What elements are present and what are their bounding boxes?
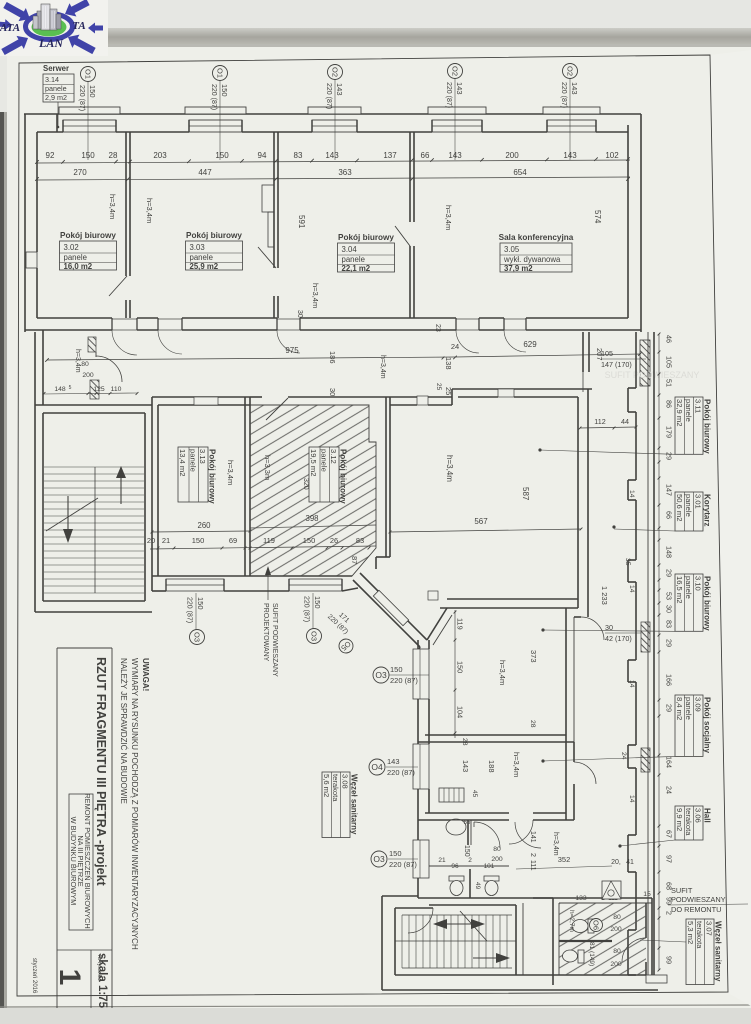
svg-text:5,3 m2: 5,3 m2 bbox=[686, 921, 695, 944]
svg-text:3.03: 3.03 bbox=[190, 243, 205, 252]
svg-text:21: 21 bbox=[162, 536, 170, 545]
svg-text:654: 654 bbox=[513, 168, 527, 177]
svg-text:150: 150 bbox=[390, 665, 403, 674]
svg-text:Pokój biurowy: Pokój biurowy bbox=[338, 233, 394, 242]
svg-text:15: 15 bbox=[643, 891, 651, 898]
svg-text:3.08: 3.08 bbox=[341, 774, 350, 789]
svg-text:148: 148 bbox=[54, 386, 66, 393]
svg-text:35: 35 bbox=[624, 558, 631, 566]
svg-text:447: 447 bbox=[198, 168, 212, 177]
svg-text:14: 14 bbox=[628, 490, 635, 498]
svg-text:150: 150 bbox=[215, 151, 229, 160]
svg-text:Węzeł sanitarny: Węzeł sanitarny bbox=[714, 921, 723, 982]
svg-text:66: 66 bbox=[665, 511, 674, 519]
svg-text:28: 28 bbox=[461, 738, 468, 746]
svg-text:80: 80 bbox=[493, 846, 501, 853]
svg-text:105: 105 bbox=[665, 356, 674, 368]
svg-text:RZUT FRAGMENTU III PIĘTRA -pro: RZUT FRAGMENTU III PIĘTRA -projekt bbox=[94, 657, 108, 887]
svg-text:30: 30 bbox=[296, 310, 303, 318]
svg-text:23: 23 bbox=[434, 324, 441, 332]
svg-text:O3: O3 bbox=[373, 854, 385, 864]
svg-text:LAN: LAN bbox=[38, 36, 64, 50]
svg-text:PODWIESZANY: PODWIESZANY bbox=[671, 895, 726, 904]
svg-text:87: 87 bbox=[350, 556, 359, 564]
svg-text:Pokój biurowy: Pokój biurowy bbox=[703, 399, 712, 454]
svg-text:143: 143 bbox=[461, 760, 470, 772]
svg-text:200: 200 bbox=[82, 372, 94, 379]
svg-text:19,5 m2: 19,5 m2 bbox=[309, 449, 318, 476]
svg-text:3.05: 3.05 bbox=[504, 245, 520, 254]
svg-text:3.06: 3.06 bbox=[694, 808, 703, 823]
svg-text:h=3,4m: h=3,4m bbox=[445, 455, 454, 482]
svg-text:h=3,4m: h=3,4m bbox=[226, 460, 235, 485]
svg-text:141: 141 bbox=[529, 831, 536, 843]
svg-text:h=3,3m: h=3,3m bbox=[263, 455, 272, 480]
svg-text:220 (87): 220 (87) bbox=[389, 860, 417, 869]
svg-text:3.12: 3.12 bbox=[329, 449, 338, 464]
svg-text:105: 105 bbox=[601, 349, 613, 358]
svg-text:150: 150 bbox=[313, 596, 322, 609]
svg-text:14: 14 bbox=[628, 795, 635, 803]
svg-text:panele: panele bbox=[189, 449, 198, 472]
svg-text:14: 14 bbox=[628, 585, 635, 593]
svg-text:22,1 m2: 22,1 m2 bbox=[342, 264, 371, 273]
svg-text:O3: O3 bbox=[375, 670, 387, 680]
svg-text:Korytarz: Korytarz bbox=[703, 494, 712, 526]
svg-text:125: 125 bbox=[93, 386, 105, 393]
svg-text:363: 363 bbox=[338, 168, 352, 177]
svg-text:16,0 m2: 16,0 m2 bbox=[64, 262, 93, 271]
svg-text:O2: O2 bbox=[330, 67, 339, 77]
svg-text:143: 143 bbox=[325, 151, 339, 160]
svg-text:119: 119 bbox=[456, 618, 465, 630]
svg-text:panele: panele bbox=[320, 449, 329, 472]
svg-text:51: 51 bbox=[665, 379, 674, 387]
svg-text:574: 574 bbox=[593, 210, 602, 224]
svg-text:2: 2 bbox=[529, 853, 536, 857]
svg-text:Pokój biurowy: Pokój biurowy bbox=[208, 449, 217, 504]
svg-text:UWAGA!: UWAGA! bbox=[141, 658, 150, 691]
svg-text:143: 143 bbox=[387, 757, 400, 766]
svg-text:150: 150 bbox=[88, 85, 97, 98]
svg-text:O6: O6 bbox=[591, 920, 600, 930]
svg-text:99: 99 bbox=[665, 956, 674, 964]
svg-text:143: 143 bbox=[570, 82, 579, 95]
svg-text:h=2,7m: h=2,7m bbox=[568, 910, 575, 932]
svg-text:270: 270 bbox=[73, 168, 87, 177]
svg-text:Pokój socjalny: Pokój socjalny bbox=[703, 697, 712, 754]
svg-text:13,4 m2: 13,4 m2 bbox=[178, 449, 187, 476]
svg-text:150: 150 bbox=[389, 849, 402, 858]
svg-text:terakota: terakota bbox=[684, 808, 693, 836]
svg-text:29: 29 bbox=[665, 639, 674, 647]
svg-text:h=3,4m: h=3,4m bbox=[552, 832, 559, 856]
svg-text:21: 21 bbox=[438, 857, 446, 864]
svg-text:320: 320 bbox=[302, 478, 309, 490]
svg-text:panele: panele bbox=[45, 84, 67, 93]
svg-text:panele: panele bbox=[190, 253, 213, 262]
svg-text:49: 49 bbox=[474, 882, 481, 890]
svg-text:h=3,4m: h=3,4m bbox=[145, 198, 154, 223]
svg-text:220 (87): 220 (87) bbox=[325, 83, 332, 109]
svg-text:50,6 m2: 50,6 m2 bbox=[675, 494, 684, 521]
svg-text:TA: TA bbox=[72, 20, 85, 32]
svg-text:14: 14 bbox=[628, 680, 635, 688]
svg-text:200: 200 bbox=[610, 961, 622, 968]
svg-text:150: 150 bbox=[456, 661, 465, 673]
svg-text:67: 67 bbox=[665, 830, 674, 838]
svg-text:O1: O1 bbox=[83, 69, 92, 79]
svg-text:SUFIT: SUFIT bbox=[671, 886, 693, 895]
svg-text:143: 143 bbox=[455, 82, 464, 95]
svg-text:5: 5 bbox=[69, 385, 72, 391]
svg-text:398: 398 bbox=[305, 514, 318, 523]
svg-text:3.10: 3.10 bbox=[694, 576, 703, 591]
svg-text:102: 102 bbox=[605, 151, 619, 160]
svg-text:37,9 m2: 37,9 m2 bbox=[504, 264, 533, 273]
svg-text:O1: O1 bbox=[215, 68, 224, 78]
svg-text:3.11: 3.11 bbox=[694, 399, 703, 413]
svg-text:Nr rysunku:: Nr rysunku: bbox=[96, 955, 102, 982]
svg-text:O4: O4 bbox=[371, 762, 383, 772]
svg-text:42 (170): 42 (170) bbox=[605, 634, 632, 643]
svg-text:200: 200 bbox=[505, 151, 519, 160]
svg-text:PROJEKTOWANY: PROJEKTOWANY bbox=[262, 603, 269, 662]
svg-text:26: 26 bbox=[330, 536, 338, 545]
svg-text:83: 83 bbox=[356, 536, 364, 545]
svg-text:W BUDYNKU BIUROWYM: W BUDYNKU BIUROWYM bbox=[69, 817, 78, 906]
svg-text:92: 92 bbox=[46, 151, 55, 160]
svg-text:h=3,4m: h=3,4m bbox=[108, 194, 117, 219]
svg-text:30: 30 bbox=[665, 605, 674, 613]
svg-text:Serwer: Serwer bbox=[43, 64, 69, 73]
svg-text:186: 186 bbox=[328, 351, 337, 364]
svg-text:104: 104 bbox=[456, 706, 465, 718]
svg-text:373: 373 bbox=[529, 650, 538, 663]
svg-text:44: 44 bbox=[621, 417, 629, 426]
svg-text:975: 975 bbox=[285, 346, 299, 355]
svg-text:3.02: 3.02 bbox=[64, 243, 79, 252]
svg-text:137: 137 bbox=[383, 151, 397, 160]
svg-text:25,9 m2: 25,9 m2 bbox=[190, 262, 219, 271]
svg-text:96: 96 bbox=[451, 863, 459, 870]
svg-text:ATA: ATA bbox=[0, 22, 20, 34]
svg-text:24: 24 bbox=[665, 786, 674, 794]
svg-text:220 (87): 220 (87) bbox=[390, 676, 418, 685]
svg-text:O3: O3 bbox=[192, 632, 201, 642]
svg-text:24: 24 bbox=[620, 752, 627, 760]
svg-text:panele: panele bbox=[342, 255, 365, 264]
svg-text:29: 29 bbox=[665, 569, 674, 577]
svg-text:29: 29 bbox=[665, 704, 674, 712]
svg-text:WYMIARY NA RYSUNKU POCHODZĄ Z: WYMIARY NA RYSUNKU POCHODZĄ Z POMIARÓW I… bbox=[130, 658, 139, 950]
svg-text:2: 2 bbox=[468, 857, 472, 864]
svg-text:1: 1 bbox=[53, 969, 86, 986]
svg-text:150: 150 bbox=[196, 597, 205, 610]
svg-text:147: 147 bbox=[665, 484, 674, 496]
svg-text:9,9 m2: 9,9 m2 bbox=[675, 808, 684, 831]
svg-text:1 233: 1 233 bbox=[600, 586, 609, 605]
svg-text:86: 86 bbox=[665, 400, 674, 408]
svg-text:panele: panele bbox=[684, 399, 693, 422]
svg-text:179: 179 bbox=[665, 426, 674, 438]
svg-text:94: 94 bbox=[258, 151, 267, 160]
svg-text:41: 41 bbox=[626, 859, 634, 866]
svg-text:150: 150 bbox=[463, 845, 470, 857]
svg-text:30: 30 bbox=[328, 388, 337, 396]
svg-text:terakota: terakota bbox=[331, 774, 340, 802]
svg-text:Pokój biurowy: Pokój biurowy bbox=[703, 576, 712, 631]
svg-text:panele: panele bbox=[684, 576, 693, 599]
svg-text:55: 55 bbox=[464, 820, 471, 826]
svg-text:150: 150 bbox=[303, 536, 316, 545]
svg-text:h=3,4m: h=3,4m bbox=[512, 752, 521, 777]
svg-text:133: 133 bbox=[575, 895, 587, 902]
svg-text:panele: panele bbox=[684, 697, 693, 720]
svg-text:147 (170): 147 (170) bbox=[601, 360, 632, 369]
svg-text:200: 200 bbox=[610, 926, 622, 933]
svg-text:Sala konferencyjna: Sala konferencyjna bbox=[499, 233, 574, 242]
svg-text:111: 111 bbox=[529, 860, 536, 871]
svg-text:220 (87): 220 (87) bbox=[387, 768, 415, 777]
svg-text:220 (87): 220 (87) bbox=[445, 82, 452, 108]
svg-text:220 (87): 220 (87) bbox=[303, 596, 310, 622]
svg-text:220 (87): 220 (87) bbox=[186, 597, 193, 623]
svg-text:24: 24 bbox=[451, 342, 459, 351]
svg-text:32,9 m2: 32,9 m2 bbox=[675, 399, 684, 426]
svg-text:3.09: 3.09 bbox=[694, 697, 703, 712]
svg-text:3.14: 3.14 bbox=[45, 75, 59, 84]
svg-text:148: 148 bbox=[665, 546, 674, 558]
svg-text:629: 629 bbox=[523, 340, 537, 349]
svg-text:2,9 m2: 2,9 m2 bbox=[45, 93, 67, 102]
svg-text:panele: panele bbox=[64, 253, 87, 262]
svg-text:166: 166 bbox=[665, 674, 674, 686]
svg-text:25: 25 bbox=[435, 383, 442, 391]
svg-text:46: 46 bbox=[665, 335, 674, 343]
svg-text:591: 591 bbox=[297, 215, 306, 229]
svg-text:97: 97 bbox=[665, 855, 674, 863]
svg-text:150: 150 bbox=[220, 84, 229, 97]
svg-text:80: 80 bbox=[81, 361, 89, 368]
svg-text:O3: O3 bbox=[309, 631, 318, 641]
svg-text:119: 119 bbox=[263, 536, 275, 545]
svg-text:81 (149): 81 (149) bbox=[588, 942, 595, 966]
svg-text:29: 29 bbox=[665, 452, 674, 460]
svg-text:28: 28 bbox=[529, 720, 536, 728]
svg-text:164: 164 bbox=[665, 756, 674, 768]
svg-text:3.04: 3.04 bbox=[342, 245, 358, 254]
svg-text:3.13: 3.13 bbox=[198, 449, 207, 464]
svg-text:Węzeł sanitarny: Węzeł sanitarny bbox=[350, 774, 359, 835]
svg-text:h=3,4m: h=3,4m bbox=[444, 205, 453, 230]
svg-text:69: 69 bbox=[229, 536, 237, 545]
svg-text:220 (87): 220 (87) bbox=[210, 84, 217, 110]
svg-text:587: 587 bbox=[521, 487, 530, 501]
svg-text:h=3,4m: h=3,4m bbox=[311, 283, 320, 308]
svg-text:O2: O2 bbox=[565, 66, 574, 76]
svg-text:101: 101 bbox=[484, 863, 495, 870]
svg-text:O2: O2 bbox=[450, 66, 459, 76]
svg-text:terakota: terakota bbox=[695, 921, 704, 949]
svg-text:h=3,4m: h=3,4m bbox=[379, 355, 386, 379]
svg-text:8,4 m2: 8,4 m2 bbox=[675, 697, 684, 720]
svg-text:112: 112 bbox=[594, 417, 605, 426]
svg-text:143: 143 bbox=[335, 83, 344, 96]
svg-text:h=3,4m: h=3,4m bbox=[498, 660, 507, 685]
svg-text:80: 80 bbox=[613, 948, 621, 955]
svg-text:SUFIT PODWIESZANY: SUFIT PODWIESZANY bbox=[271, 603, 278, 677]
svg-text:567: 567 bbox=[474, 517, 488, 526]
svg-text:panele: panele bbox=[684, 494, 693, 517]
svg-text:138: 138 bbox=[444, 357, 453, 370]
svg-text:83: 83 bbox=[294, 151, 303, 160]
svg-text:83: 83 bbox=[665, 620, 674, 628]
svg-text:20: 20 bbox=[147, 536, 155, 545]
svg-text:150: 150 bbox=[192, 536, 205, 545]
svg-text:styczeń 2016: styczeń 2016 bbox=[31, 958, 37, 994]
svg-text:45: 45 bbox=[471, 790, 478, 798]
svg-text:220 (87): 220 (87) bbox=[78, 85, 85, 111]
svg-text:53: 53 bbox=[665, 592, 674, 600]
svg-text:Hall: Hall bbox=[703, 808, 712, 823]
svg-text:16,5 m2: 16,5 m2 bbox=[675, 576, 684, 603]
svg-text:352: 352 bbox=[558, 855, 571, 864]
svg-text:66: 66 bbox=[421, 151, 430, 160]
svg-text:80: 80 bbox=[613, 914, 621, 921]
svg-text:3.07: 3.07 bbox=[705, 921, 714, 936]
svg-text:SUFIT PODWIESZANY: SUFIT PODWIESZANY bbox=[605, 370, 700, 380]
svg-text:3.01: 3.01 bbox=[694, 494, 703, 509]
svg-text:220 (87): 220 (87) bbox=[560, 82, 567, 108]
svg-text:NALEŻY JE SPRAWDZIĆ NA BUDOWIE: NALEŻY JE SPRAWDZIĆ NA BUDOWIE bbox=[119, 658, 128, 804]
svg-text:203: 203 bbox=[153, 151, 167, 160]
svg-text:Pokój biurowy: Pokój biurowy bbox=[186, 231, 242, 240]
svg-text:Pokój biurowy: Pokój biurowy bbox=[339, 449, 348, 504]
svg-text:200: 200 bbox=[491, 856, 503, 863]
svg-text:wykł. dywanowa: wykł. dywanowa bbox=[503, 255, 561, 264]
svg-text:Pokój biurowy: Pokój biurowy bbox=[60, 231, 116, 240]
svg-text:20,: 20, bbox=[611, 859, 621, 866]
svg-text:110: 110 bbox=[111, 386, 122, 393]
svg-text:5,6 m2: 5,6 m2 bbox=[322, 774, 331, 797]
svg-text:DO REMONTU: DO REMONTU bbox=[671, 905, 722, 914]
svg-text:h=3,4m: h=3,4m bbox=[74, 349, 81, 373]
svg-text:260: 260 bbox=[197, 521, 211, 530]
svg-text:188: 188 bbox=[487, 760, 496, 773]
svg-text:28: 28 bbox=[109, 151, 118, 160]
